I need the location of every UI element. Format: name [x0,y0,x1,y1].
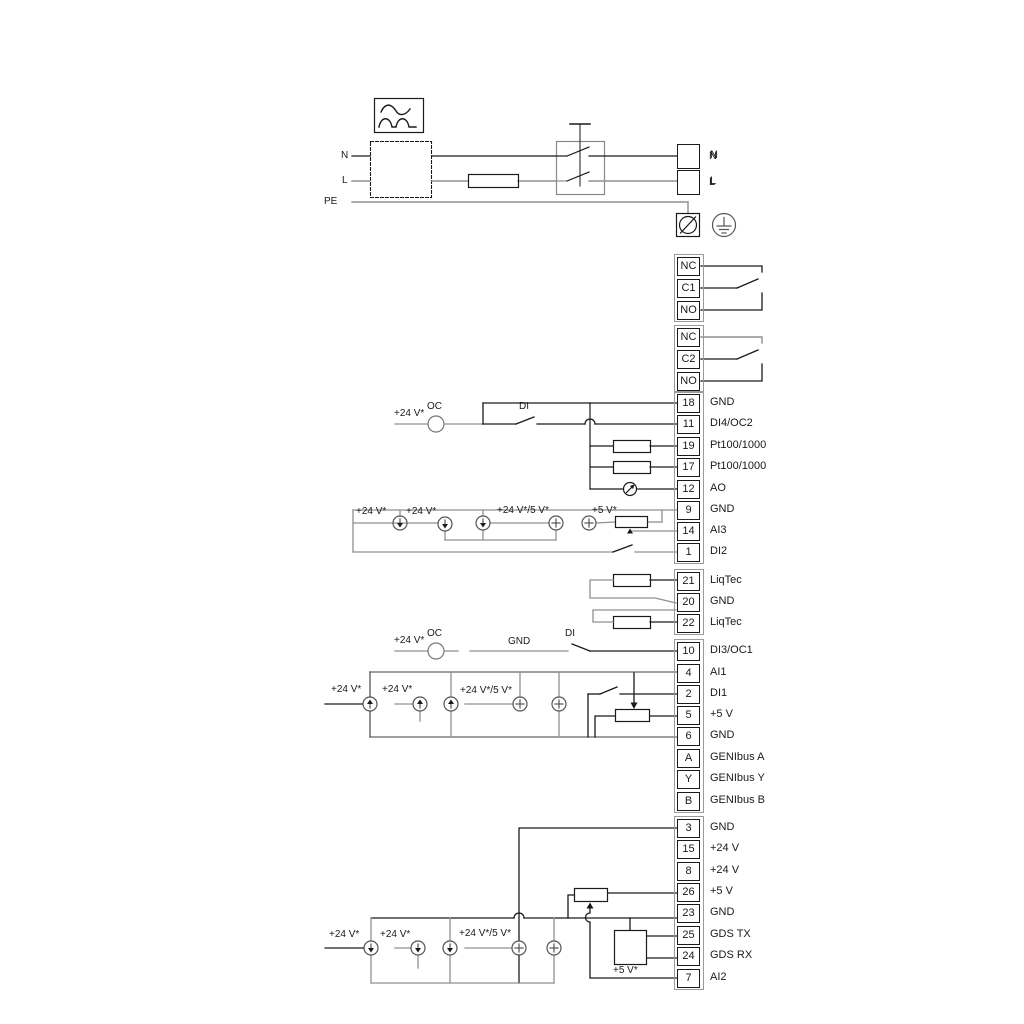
terminal-cell-nc: NC [677,257,700,276]
ground-wire-label: GND [508,636,530,647]
terminal-label-ai1: AI1 [710,666,727,678]
terminal-label-genibus-b: GENIbus B [710,794,765,806]
wiper-arrow [631,703,638,710]
terminal-cell-10: 10 [677,642,700,661]
terminal-cell-21: 21 [677,572,700,591]
analog-output-meter-icon [624,483,637,496]
liqtec-sensor [614,617,651,629]
terminal-label-gds-tx: GDS TX [710,928,751,940]
terminal-label-ao: AO [710,482,726,494]
fuse [469,175,519,188]
wiring-diagram: N L PE N L +24 V* OC DI +24 V* +24 V* +2… [0,0,1024,1024]
pe-terminal [677,214,700,237]
terminal-label-n: N [710,149,718,161]
supply-24v-5v-label: +24 V*/5 V* [497,505,549,516]
terminal-cell-23: 23 [677,904,700,923]
di2-switch-blade [613,545,632,552]
terminal-cell-12: 12 [677,480,700,499]
terminal-label-di2: DI2 [710,545,727,557]
terminal-cell-17: 17 [677,458,700,477]
terminal-label-gnd: GND [710,821,734,833]
supply-24v-5v-label: +24 V*/5 V* [460,685,512,696]
terminal-cell-5: 5 [677,706,700,725]
gds-module [615,931,647,965]
potentiometer [575,889,608,902]
liqtec-wiring [590,575,677,629]
terminal-label-gnd: GND [710,595,734,607]
supply-24v-5v-label: +24 V*/5 V* [459,928,511,939]
terminal-label-gnd: GND [710,396,734,408]
terminal-cell-19: 19 [677,437,700,456]
terminal-label-liqtec: LiqTec [710,616,742,628]
open-collector-icon [428,643,444,659]
terminal-cell-no: NO [677,301,700,320]
input-pe-label: PE [324,196,337,207]
potentiometer [616,710,650,722]
di1-switch-blade [600,687,617,694]
supply-24v-label: +24 V* [331,684,361,695]
liqtec-sensor [614,575,651,587]
terminal-label--24-v: +24 V [710,842,739,854]
terminal-label--5-v: +5 V [710,885,733,897]
ai1-source-options [325,672,677,737]
pt100-resistor [614,441,651,453]
input-neutral-label: N [341,150,348,161]
terminal-label-gnd: GND [710,906,734,918]
terminal-cell-y: Y [677,770,700,789]
terminal-label-gnd: GND [710,503,734,515]
terminal-cell-22: 22 [677,614,700,633]
supply-24v-label: +24 V* [394,635,424,646]
terminal-cell-b: B [677,792,700,811]
terminal-cell-6: 6 [677,727,700,746]
terminal-cell-1: 1 [677,543,700,562]
terminal-cell-a: A [677,749,700,768]
terminal-label-genibus-y: GENIbus Y [710,772,765,784]
supply-24v-label: +24 V* [394,408,424,419]
terminal-cell-no: NO [677,372,700,391]
terminal-cell-18: 18 [677,394,700,413]
terminal-label-gnd: GND [710,729,734,741]
terminal-cell-25: 25 [677,926,700,945]
supply-24v-label: +24 V* [329,929,359,940]
terminal-cell-nc: NC [677,328,700,347]
supply-5v-label: +5 V* [592,505,617,516]
terminal-cell-14: 14 [677,522,700,541]
potentiometer [616,517,648,528]
terminal-label-ai2: AI2 [710,971,727,983]
di-switch-blade [572,644,590,651]
terminal-label-liqtec: LiqTec [710,574,742,586]
terminal-label-l: L [710,175,716,187]
wiper-arrow [587,903,594,909]
digital-input-label: DI [565,628,575,639]
terminal-cell-4: 4 [677,664,700,683]
terminal-label-di1: DI1 [710,687,727,699]
terminal-cell-20: 20 [677,593,700,612]
relay-2-wiring [701,337,762,381]
terminal-cell-l [677,170,700,195]
terminal-cell-11: 11 [677,415,700,434]
terminal-label--24-v: +24 V [710,864,739,876]
sine-filter-box [375,99,424,133]
supply-24v-label: +24 V* [356,506,386,517]
terminal-cell-3: 3 [677,819,700,838]
supply-24v-label: +24 V* [406,506,436,517]
relay-1-wiring [701,266,762,310]
open-collector-label: OC [427,401,442,412]
terminal-label--5-v: +5 V [710,708,733,720]
digital-input-label: DI [519,401,529,412]
ai3-source-options [353,510,677,552]
earth-ground-icon [713,214,736,237]
main-switch [556,124,677,195]
terminal-cell-c1: C1 [677,279,700,298]
terminal-label-gds-rx: GDS RX [710,949,752,961]
terminal-label-pt100-1000: Pt100/1000 [710,439,766,451]
supply-24v-label: +24 V* [382,684,412,695]
terminal-cell-15: 15 [677,840,700,859]
terminal-cell-24: 24 [677,947,700,966]
pe-wire [352,202,688,213]
pt100-ao-wiring [590,403,677,496]
di-switch-blade [516,417,534,424]
terminal-cell-c2: C2 [677,350,700,369]
supply-5v-label: +5 V* [613,965,638,976]
terminal-label-genibus-a: GENIbus A [710,751,764,763]
terminal-label-ai3: AI3 [710,524,727,536]
pt100-resistor [614,462,651,474]
terminal-cell-9: 9 [677,501,700,520]
terminal-cell-n [677,144,700,169]
terminal-label-di4-oc2: DI4/OC2 [710,417,753,429]
open-collector-icon [428,416,444,432]
terminal-cell-26: 26 [677,883,700,902]
input-line-label: L [342,175,348,186]
terminal-cell-2: 2 [677,685,700,704]
supply-24v-label: +24 V* [380,929,410,940]
ai2-gds-wiring [325,828,677,983]
terminal-label-di3-oc1: DI3/OC1 [710,644,753,656]
terminal-cell-7: 7 [677,969,700,988]
ac-input-unit [352,142,556,198]
open-collector-label: OC [427,628,442,639]
terminal-cell-8: 8 [677,862,700,881]
di3-oc1-wiring [395,643,677,659]
terminal-label-pt100-1000: Pt100/1000 [710,460,766,472]
